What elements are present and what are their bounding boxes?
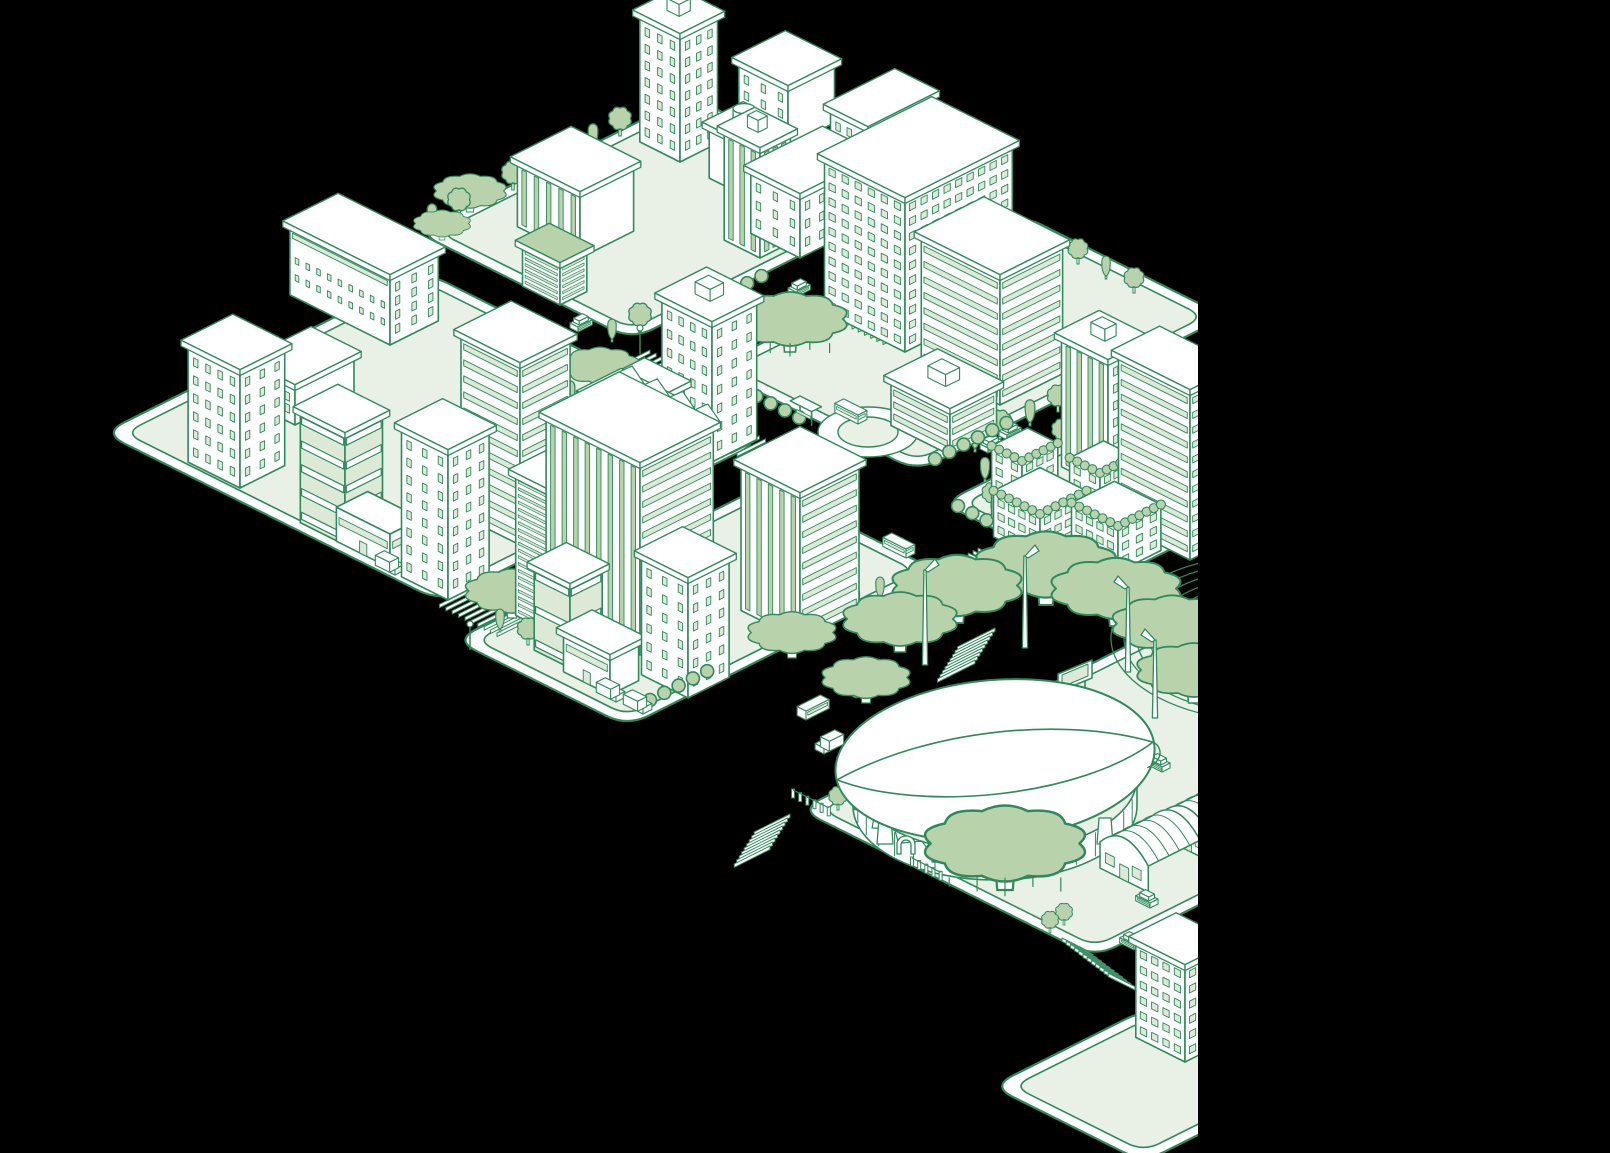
building-hospital-front-tower — [634, 527, 736, 698]
tree-cloud — [925, 805, 1085, 896]
building-left-front-tower — [394, 399, 496, 600]
canvas — [0, 0, 1610, 1153]
city-illustration — [0, 0, 1610, 1153]
building-left-corner-tower — [181, 314, 292, 488]
